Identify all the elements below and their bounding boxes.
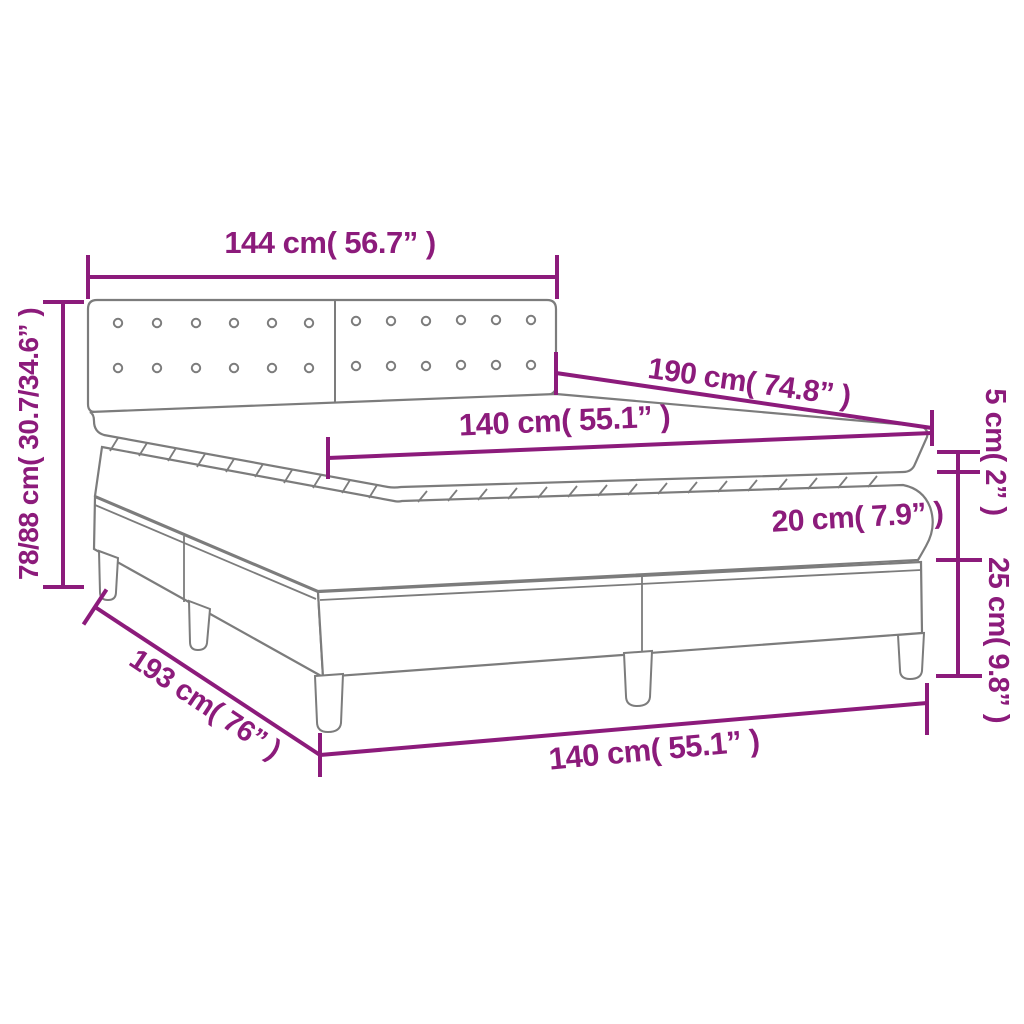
dim-base-width: 140 cm( 55.1” ) [320,683,927,777]
dim-right-heights: 5 cm( 2” ) 25 cm( 9.8” ) [936,388,1014,723]
diagram-canvas: 144 cm( 56.7” ) 78/88 cm( 30.7/34.6” ) 1… [0,0,1024,1024]
headboard [88,300,556,412]
dim-base-length-label: 193 cm( 76” ) [124,643,287,766]
dim-base-width-label: 140 cm( 55.1” ) [547,723,761,777]
dim-base-height-label: 25 cm( 9.8” ) [982,557,1014,723]
dim-headboard-width: 144 cm( 56.7” ) [88,225,557,299]
dim-overall-height: 78/88 cm( 30.7/34.6” ) [13,302,84,587]
dim-headboard-width-label: 144 cm( 56.7” ) [224,225,435,260]
dim-overall-height-label: 78/88 cm( 30.7/34.6” ) [13,308,44,580]
dim-topper-thickness-label: 5 cm( 2” ) [979,388,1011,515]
bed-dimension-diagram: 144 cm( 56.7” ) 78/88 cm( 30.7/34.6” ) 1… [0,0,1024,1024]
